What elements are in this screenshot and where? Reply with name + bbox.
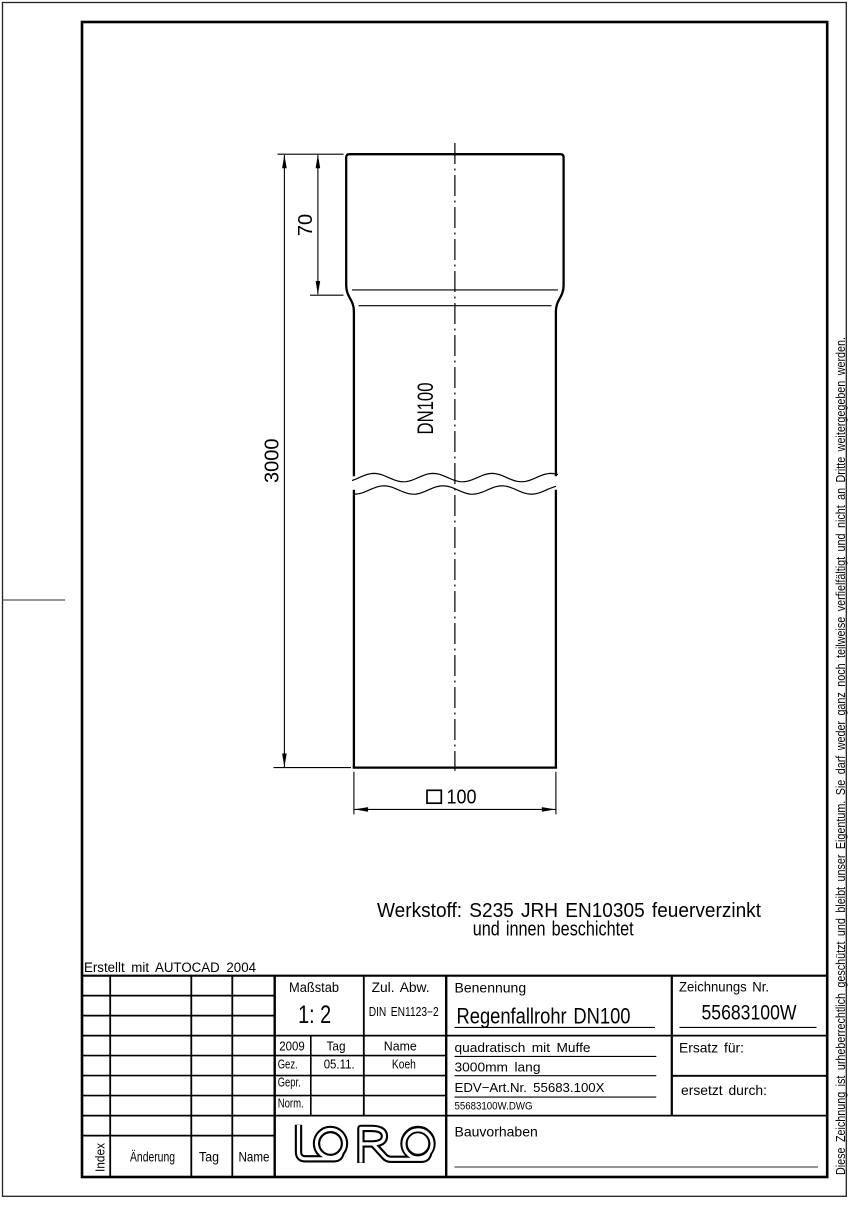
svg-text:und innen beschichtet: und innen beschichtet <box>473 919 634 941</box>
svg-text:Benennung: Benennung <box>455 980 527 996</box>
svg-text:Ersatz für:: Ersatz für: <box>679 1041 744 1056</box>
svg-text:DN100: DN100 <box>413 383 438 435</box>
svg-text:Zeichnungs Nr.: Zeichnungs Nr. <box>679 980 769 995</box>
svg-text:70: 70 <box>295 214 317 236</box>
svg-text:3000mm lang: 3000mm lang <box>455 1059 541 1074</box>
svg-text:Name: Name <box>239 1149 270 1164</box>
svg-text:Tag: Tag <box>199 1149 219 1164</box>
svg-text:Regenfallrohr DN100: Regenfallrohr DN100 <box>457 1003 631 1028</box>
svg-text:Bauvorhaben: Bauvorhaben <box>455 1124 538 1140</box>
svg-text:Koeh: Koeh <box>392 1057 416 1071</box>
svg-text:Erstellt mit AUTOCAD 2004: Erstellt mit AUTOCAD 2004 <box>84 960 256 975</box>
svg-text:100: 100 <box>447 786 477 808</box>
svg-text:Norm.: Norm. <box>278 1096 304 1110</box>
svg-text:DIN EN1123−2: DIN EN1123−2 <box>369 1005 439 1019</box>
svg-text:2009: 2009 <box>279 1040 305 1054</box>
svg-text:Diese Zeichnung ist urheberrec: Diese Zeichnung ist urheberrechtlich ges… <box>833 337 848 1175</box>
svg-text:55683100W.DWG: 55683100W.DWG <box>455 1101 533 1113</box>
svg-text:Zul. Abw.: Zul. Abw. <box>372 980 430 995</box>
svg-text:1: 2: 1: 2 <box>298 1001 331 1029</box>
svg-text:Tag: Tag <box>327 1040 346 1054</box>
svg-text:Index: Index <box>93 1143 108 1172</box>
svg-text:Name: Name <box>384 1040 417 1054</box>
svg-text:05.11.: 05.11. <box>324 1057 355 1071</box>
svg-text:55683100W: 55683100W <box>702 1001 798 1025</box>
svg-text:Maßstab: Maßstab <box>289 980 339 995</box>
svg-text:Gepr.: Gepr. <box>278 1075 301 1089</box>
svg-text:3000: 3000 <box>262 438 284 483</box>
svg-text:EDV−Art.Nr. 55683.100X: EDV−Art.Nr. 55683.100X <box>455 1080 605 1095</box>
svg-text:ersetzt durch:: ersetzt durch: <box>681 1083 767 1098</box>
svg-text:Änderung: Änderung <box>130 1149 175 1164</box>
svg-text:quadratisch mit Muffe: quadratisch mit Muffe <box>455 1040 591 1055</box>
svg-text:Gez.: Gez. <box>278 1057 298 1071</box>
